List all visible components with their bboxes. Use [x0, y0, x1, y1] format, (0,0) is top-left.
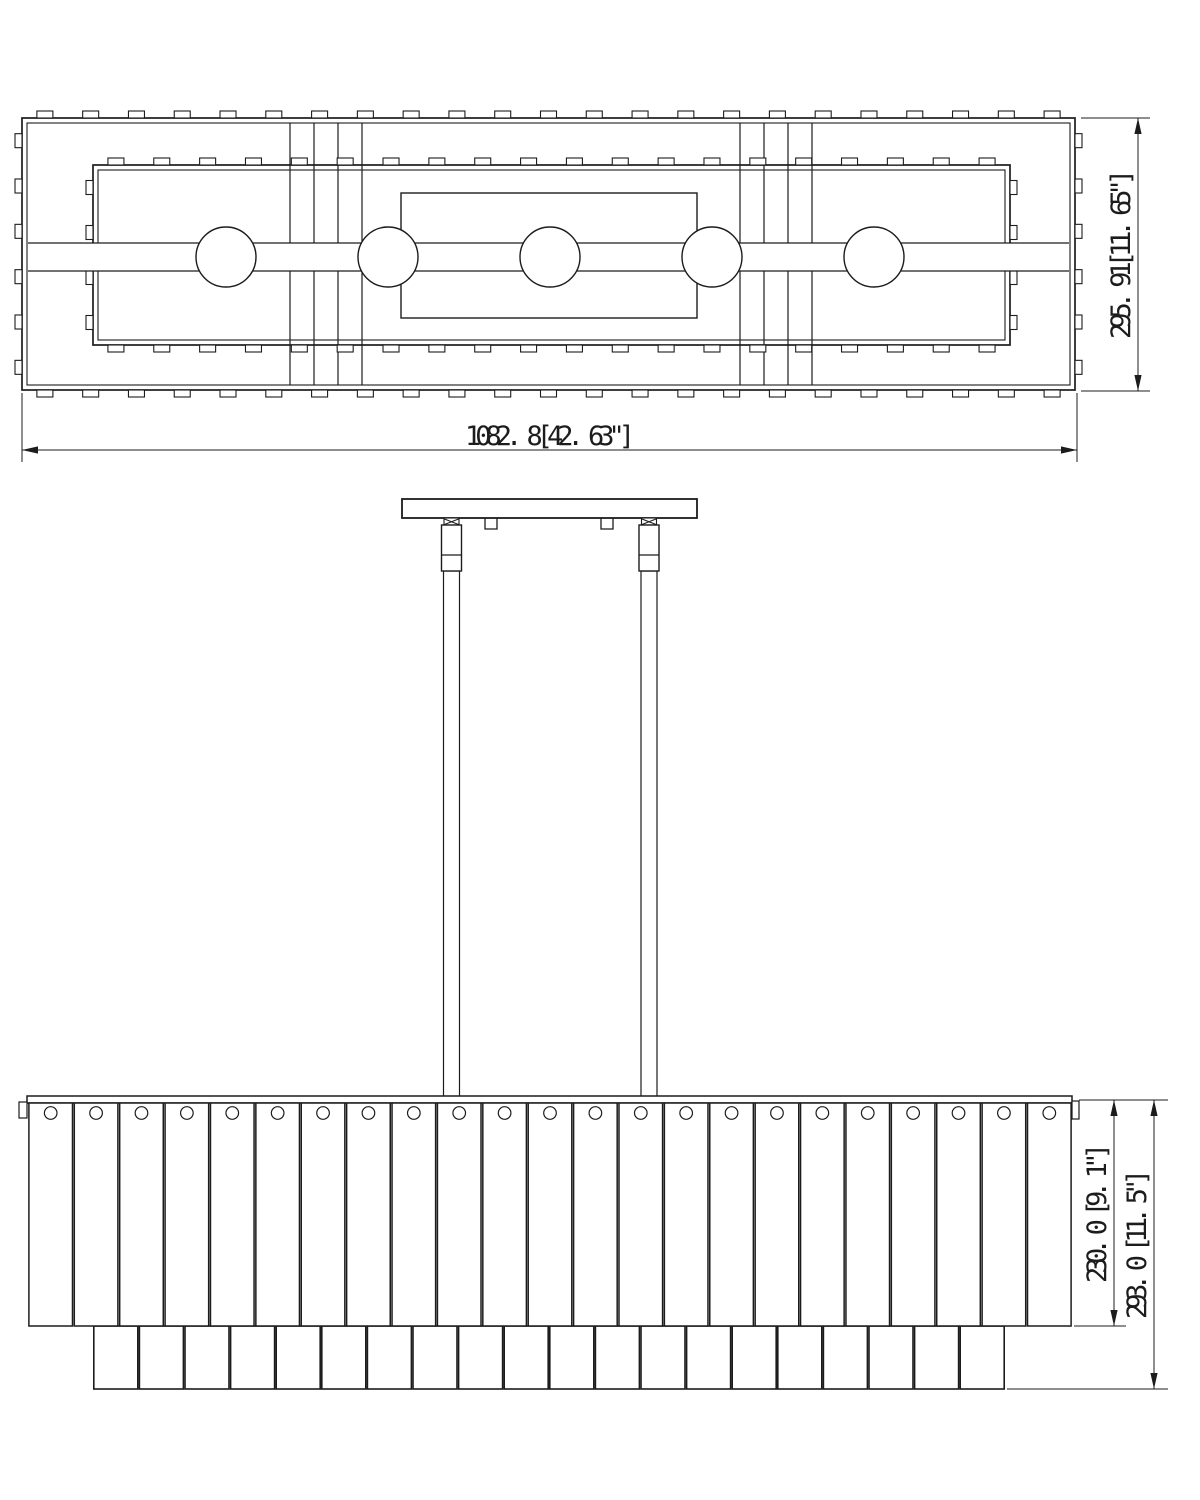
- outer-tab-bottom: [495, 390, 511, 397]
- panel-hole: [453, 1107, 466, 1120]
- outer-tab-top: [541, 111, 557, 118]
- outer-tab-bottom: [861, 390, 877, 397]
- inner-tab-top: [750, 158, 766, 165]
- outer-tab-top: [357, 111, 373, 118]
- outer-tab-top: [220, 111, 236, 118]
- outer-tab-bottom: [769, 390, 785, 397]
- inner-tab-top: [658, 158, 674, 165]
- outer-tab-left: [15, 134, 22, 148]
- back-crystal-panel: [185, 1326, 229, 1389]
- outer-tab-top: [83, 111, 99, 118]
- panel-hole: [861, 1107, 874, 1120]
- panel-hole: [408, 1107, 421, 1120]
- back-crystal-panel: [732, 1326, 776, 1389]
- back-crystal-panel: [960, 1326, 1004, 1389]
- outer-tab-right: [1075, 360, 1082, 374]
- back-crystal-panel: [322, 1326, 366, 1389]
- inner-tab-bottom: [887, 345, 903, 352]
- back-crystal-panel: [550, 1326, 594, 1389]
- panel-hole: [816, 1107, 829, 1120]
- outer-tab-bottom: [403, 390, 419, 397]
- swivel-body: [639, 525, 659, 571]
- dim-shade-height-label: 230. 0 [9. 1"]: [1082, 1143, 1113, 1283]
- front-crystal-panel: [301, 1103, 345, 1326]
- panel-hole: [498, 1107, 511, 1120]
- inner-tab-bottom: [383, 345, 399, 352]
- panel-hole: [1043, 1107, 1056, 1120]
- outer-tab-top: [1044, 111, 1060, 118]
- outer-tab-top: [266, 111, 282, 118]
- back-crystal-panel: [231, 1326, 275, 1389]
- front-crystal-panel: [937, 1103, 981, 1326]
- inner-tab-top: [245, 158, 261, 165]
- outer-tab-bottom: [907, 390, 923, 397]
- outer-tab-right: [1075, 134, 1082, 148]
- panel-hole: [725, 1107, 738, 1120]
- inner-tab-bottom: [200, 345, 216, 352]
- outer-tab-left: [15, 179, 22, 193]
- back-crystal-panel: [778, 1326, 822, 1389]
- back-crystal-panel: [823, 1326, 867, 1389]
- back-crystal-panel: [595, 1326, 639, 1389]
- inner-tab-top: [521, 158, 537, 165]
- inner-tab-right: [1010, 271, 1017, 285]
- back-crystal-panel: [915, 1326, 959, 1389]
- inner-tab-right: [1010, 226, 1017, 240]
- outer-tab-bottom: [220, 390, 236, 397]
- inner-tab-left: [86, 226, 93, 240]
- inner-tab-bottom: [337, 345, 353, 352]
- front-crystal-panel: [846, 1103, 890, 1326]
- inner-tab-top: [383, 158, 399, 165]
- outer-tab-top: [861, 111, 877, 118]
- panel-hole: [181, 1107, 194, 1120]
- front-crystal-panel: [982, 1103, 1026, 1326]
- outer-tab-bottom: [37, 390, 53, 397]
- inner-tab-bottom: [245, 345, 261, 352]
- inner-tab-bottom: [933, 345, 949, 352]
- outer-tab-top: [998, 111, 1014, 118]
- inner-tab-bottom: [796, 345, 812, 352]
- inner-tab-bottom: [612, 345, 628, 352]
- panel-hole: [589, 1107, 602, 1120]
- inner-tab-top: [200, 158, 216, 165]
- inner-tab-top: [842, 158, 858, 165]
- panel-hole: [362, 1107, 375, 1120]
- back-crystal-panel: [504, 1326, 548, 1389]
- front-crystal-panel: [256, 1103, 300, 1326]
- swivel-body: [442, 525, 462, 571]
- dim-width-label: 1082. 8[42. 63"]: [465, 421, 635, 452]
- outer-tab-bottom: [1044, 390, 1060, 397]
- outer-tab-bottom: [174, 390, 190, 397]
- outer-tab-bottom: [724, 390, 740, 397]
- inner-tab-top: [933, 158, 949, 165]
- dim-depth-label: 295. 91[11. 65"]: [1106, 169, 1137, 339]
- outer-tab-bottom: [998, 390, 1014, 397]
- front-crystal-panel: [437, 1103, 481, 1326]
- lamp-circle: [520, 227, 580, 287]
- outer-tab-left: [15, 270, 22, 284]
- rail-end-tab-right: [1072, 1101, 1079, 1119]
- drawing-sheet: 1082. 8[42. 63"] 295. 91[11. 65"] 230. 0…: [0, 0, 1200, 1500]
- inner-tab-left: [86, 271, 93, 285]
- panel-hole: [226, 1107, 239, 1120]
- front-crystal-panel: [1028, 1103, 1072, 1326]
- front-crystal-panel: [347, 1103, 391, 1326]
- outer-tab-top: [632, 111, 648, 118]
- front-crystal-panel: [392, 1103, 436, 1326]
- inner-tab-bottom: [750, 345, 766, 352]
- panel-hole: [634, 1107, 647, 1120]
- outer-tab-top: [495, 111, 511, 118]
- inner-tab-bottom: [842, 345, 858, 352]
- back-crystal-panel: [869, 1326, 913, 1389]
- front-crystal-panel: [120, 1103, 164, 1326]
- outer-tab-right: [1075, 315, 1082, 329]
- technical-drawing: 1082. 8[42. 63"] 295. 91[11. 65"] 230. 0…: [0, 0, 1200, 1500]
- panel-hole: [135, 1107, 148, 1120]
- back-crystal-panel: [139, 1326, 183, 1389]
- hanger-rod: [641, 571, 657, 1097]
- inner-tab-top: [887, 158, 903, 165]
- back-crystal-panel: [641, 1326, 685, 1389]
- outer-tab-bottom: [632, 390, 648, 397]
- inner-tab-bottom: [154, 345, 170, 352]
- outer-tab-bottom: [541, 390, 557, 397]
- panel-hole: [271, 1107, 284, 1120]
- inner-tab-top: [704, 158, 720, 165]
- front-crystal-panel: [74, 1103, 118, 1326]
- outer-tab-top: [815, 111, 831, 118]
- inner-tab-bottom: [979, 345, 995, 352]
- panel-hole: [771, 1107, 784, 1120]
- outer-tab-top: [174, 111, 190, 118]
- outer-tab-right: [1075, 224, 1082, 238]
- inner-tab-left: [86, 316, 93, 330]
- outer-tab-bottom: [449, 390, 465, 397]
- front-crystal-panel: [574, 1103, 618, 1326]
- inner-tab-left: [86, 181, 93, 195]
- inner-tab-bottom: [704, 345, 720, 352]
- hanger-rod: [444, 571, 460, 1097]
- front-crystal-panel: [165, 1103, 209, 1326]
- top-view-plan: [15, 111, 1082, 397]
- inner-tab-bottom: [658, 345, 674, 352]
- outer-tab-left: [15, 224, 22, 238]
- outer-tab-right: [1075, 179, 1082, 193]
- inner-tab-right: [1010, 181, 1017, 195]
- panel-hole: [998, 1107, 1011, 1120]
- inner-tab-top: [291, 158, 307, 165]
- outer-tab-left: [15, 315, 22, 329]
- outer-tab-top: [953, 111, 969, 118]
- outer-tab-bottom: [586, 390, 602, 397]
- front-crystal-panel: [528, 1103, 572, 1326]
- panel-hole: [544, 1107, 557, 1120]
- outer-tab-top: [449, 111, 465, 118]
- outer-tab-top: [586, 111, 602, 118]
- back-crystal-panel: [413, 1326, 457, 1389]
- inner-tab-bottom: [429, 345, 445, 352]
- outer-tab-bottom: [312, 390, 328, 397]
- back-crystal-panel: [94, 1326, 138, 1389]
- outer-tab-bottom: [815, 390, 831, 397]
- inner-tab-top: [108, 158, 124, 165]
- back-crystal-panel: [459, 1326, 503, 1389]
- outer-tab-bottom: [953, 390, 969, 397]
- back-crystal-panel: [276, 1326, 320, 1389]
- outer-tab-top: [769, 111, 785, 118]
- front-crystal-panel: [710, 1103, 754, 1326]
- front-crystal-panel: [210, 1103, 254, 1326]
- lamp-circle: [844, 227, 904, 287]
- front-crystal-panel: [755, 1103, 799, 1326]
- back-crystal-panel: [367, 1326, 411, 1389]
- back-crystal-panel: [687, 1326, 731, 1389]
- outer-tab-bottom: [128, 390, 144, 397]
- inner-tab-top: [475, 158, 491, 165]
- outer-tab-right: [1075, 270, 1082, 284]
- dim-overall-height-label: 293. 0 [11. 5"]: [1122, 1169, 1153, 1319]
- outer-tab-bottom: [83, 390, 99, 397]
- inner-tab-bottom: [291, 345, 307, 352]
- inner-tab-top: [429, 158, 445, 165]
- panel-hole: [680, 1107, 693, 1120]
- front-crystal-panel: [801, 1103, 845, 1326]
- inner-tab-right: [1010, 316, 1017, 330]
- panel-hole: [952, 1107, 965, 1120]
- ceiling-canopy: [402, 499, 697, 518]
- panel-hole: [317, 1107, 330, 1120]
- panel-hole: [90, 1107, 103, 1120]
- outer-tab-top: [403, 111, 419, 118]
- lamp-circle: [682, 227, 742, 287]
- inner-tab-bottom: [475, 345, 491, 352]
- panel-hole: [44, 1107, 57, 1120]
- inner-tab-top: [612, 158, 628, 165]
- panel-hole: [907, 1107, 920, 1120]
- front-crystal-panel: [664, 1103, 708, 1326]
- rail-end-tab-left: [19, 1102, 27, 1118]
- outer-tab-top: [907, 111, 923, 118]
- front-crystal-panel: [29, 1103, 73, 1326]
- fixture-top-rail: [27, 1096, 1072, 1103]
- inner-tab-top: [979, 158, 995, 165]
- inner-tab-top: [566, 158, 582, 165]
- front-crystal-panel: [891, 1103, 935, 1326]
- front-crystal-panel: [619, 1103, 663, 1326]
- lamp-circle: [358, 227, 418, 287]
- inner-tab-top: [337, 158, 353, 165]
- outer-tab-bottom: [357, 390, 373, 397]
- outer-tab-top: [128, 111, 144, 118]
- outer-tab-left: [15, 360, 22, 374]
- inner-tab-bottom: [108, 345, 124, 352]
- lamp-circle: [196, 227, 256, 287]
- front-crystal-panel: [483, 1103, 527, 1326]
- outer-tab-top: [724, 111, 740, 118]
- outer-tab-top: [678, 111, 694, 118]
- inner-tab-bottom: [521, 345, 537, 352]
- inner-tab-top: [154, 158, 170, 165]
- outer-tab-bottom: [678, 390, 694, 397]
- outer-tab-top: [312, 111, 328, 118]
- outer-tab-top: [37, 111, 53, 118]
- inner-tab-top: [796, 158, 812, 165]
- inner-tab-bottom: [566, 345, 582, 352]
- outer-tab-bottom: [266, 390, 282, 397]
